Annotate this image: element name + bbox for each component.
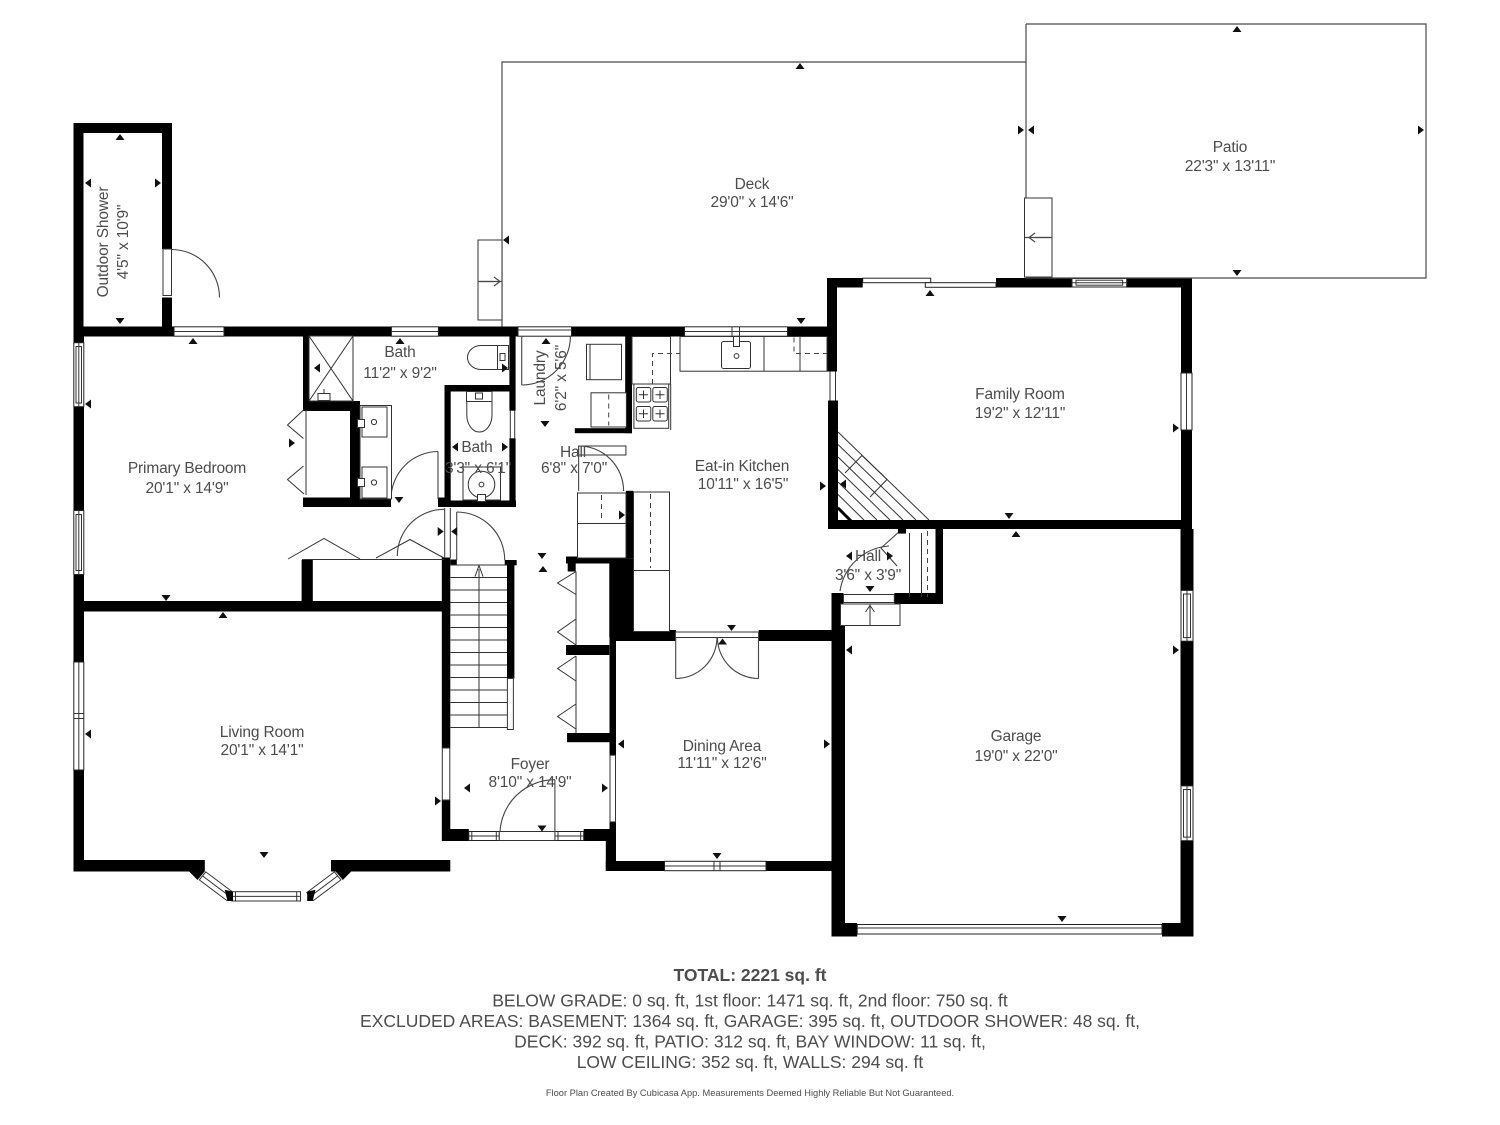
svg-text:Floor Plan Created By Cubicasa: Floor Plan Created By Cubicasa App. Meas…: [546, 1088, 954, 1098]
svg-text:DECK: 392 sq. ft, PATIO: 312 s: DECK: 392 sq. ft, PATIO: 312 sq. ft, BAY…: [514, 1032, 986, 1052]
svg-text:11'11" x 12'6": 11'11" x 12'6": [677, 755, 766, 772]
svg-text:20'1" x 14'9": 20'1" x 14'9": [145, 480, 228, 497]
svg-text:Eat-in Kitchen: Eat-in Kitchen: [695, 458, 789, 475]
svg-text:19'2" x 12'11": 19'2" x 12'11": [975, 405, 1065, 422]
svg-text:LOW CEILING: 352 sq. ft, WALLS: LOW CEILING: 352 sq. ft, WALLS: 294 sq. …: [577, 1052, 924, 1072]
svg-text:Dining Area: Dining Area: [683, 738, 762, 755]
svg-text:Foyer: Foyer: [511, 756, 550, 773]
svg-text:Deck: Deck: [735, 176, 770, 193]
svg-text:EXCLUDED AREAS: BASEMENT: 1364: EXCLUDED AREAS: BASEMENT: 1364 sq. ft, G…: [360, 1011, 1140, 1031]
svg-text:Primary Bedroom: Primary Bedroom: [128, 460, 246, 477]
svg-text:22'3" x 13'11": 22'3" x 13'11": [1185, 158, 1275, 175]
svg-text:3'6" x 3'9": 3'6" x 3'9": [835, 567, 901, 584]
svg-text:Bath: Bath: [461, 439, 492, 456]
svg-text:29'0" x 14'6": 29'0" x 14'6": [710, 194, 793, 211]
svg-text:10'11" x 16'5": 10'11" x 16'5": [698, 476, 788, 493]
svg-text:Hall: Hall: [855, 548, 881, 565]
svg-text:BELOW GRADE: 0 sq. ft, 1st flo: BELOW GRADE: 0 sq. ft, 1st floor: 1471 s…: [492, 991, 1008, 1011]
svg-text:6'8" x 7'0": 6'8" x 7'0": [541, 460, 607, 477]
svg-text:Bath: Bath: [384, 344, 415, 361]
svg-text:6'2" x 5'6": 6'2" x 5'6": [553, 345, 570, 411]
svg-text:3'3" x 6'1": 3'3" x 6'1": [445, 460, 511, 477]
svg-text:Patio: Patio: [1213, 139, 1248, 156]
svg-text:4'5" x 10'9": 4'5" x 10'9": [115, 205, 132, 280]
svg-text:Outdoor Shower: Outdoor Shower: [95, 187, 112, 298]
svg-text:19'0" x 22'0": 19'0" x 22'0": [974, 748, 1057, 765]
svg-text:TOTAL: 2221 sq. ft: TOTAL: 2221 sq. ft: [674, 965, 827, 985]
svg-text:Hall: Hall: [560, 444, 586, 461]
svg-text:20'1" x 14'1": 20'1" x 14'1": [220, 742, 303, 759]
svg-text:Living Room: Living Room: [220, 724, 305, 741]
svg-text:Laundry: Laundry: [532, 350, 549, 405]
svg-text:Garage: Garage: [991, 728, 1042, 745]
svg-text:8'10" x 14'9": 8'10" x 14'9": [488, 774, 571, 791]
svg-text:11'2" x 9'2": 11'2" x 9'2": [363, 365, 436, 382]
svg-text:Family Room: Family Room: [975, 386, 1065, 403]
